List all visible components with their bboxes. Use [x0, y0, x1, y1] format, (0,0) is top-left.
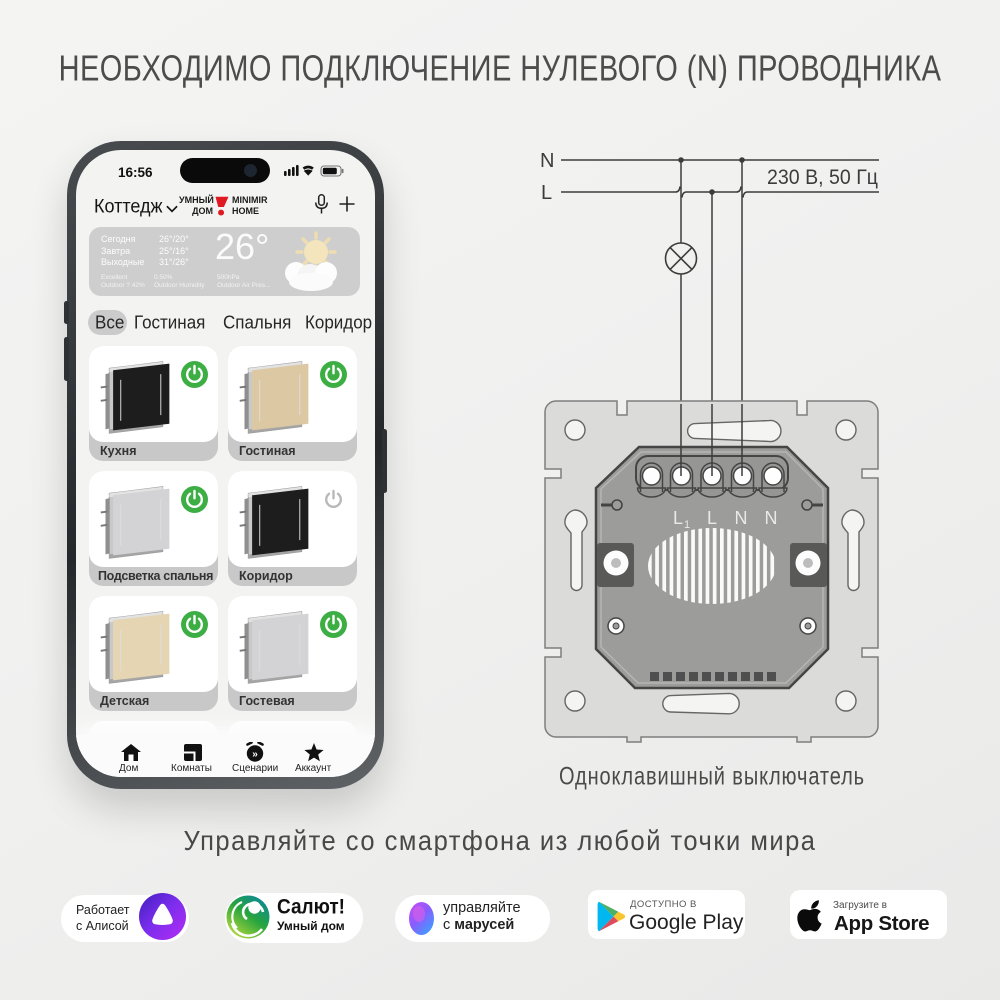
- svg-text:L: L: [541, 182, 552, 204]
- svg-text:N: N: [735, 508, 748, 528]
- svg-text:1: 1: [684, 519, 690, 531]
- svg-text:L: L: [673, 508, 683, 528]
- svg-text:N: N: [765, 508, 778, 528]
- svg-text:L: L: [707, 508, 717, 528]
- svg-text:N: N: [540, 150, 554, 172]
- svg-text:230 В, 50 Гц: 230 В, 50 Гц: [767, 165, 878, 189]
